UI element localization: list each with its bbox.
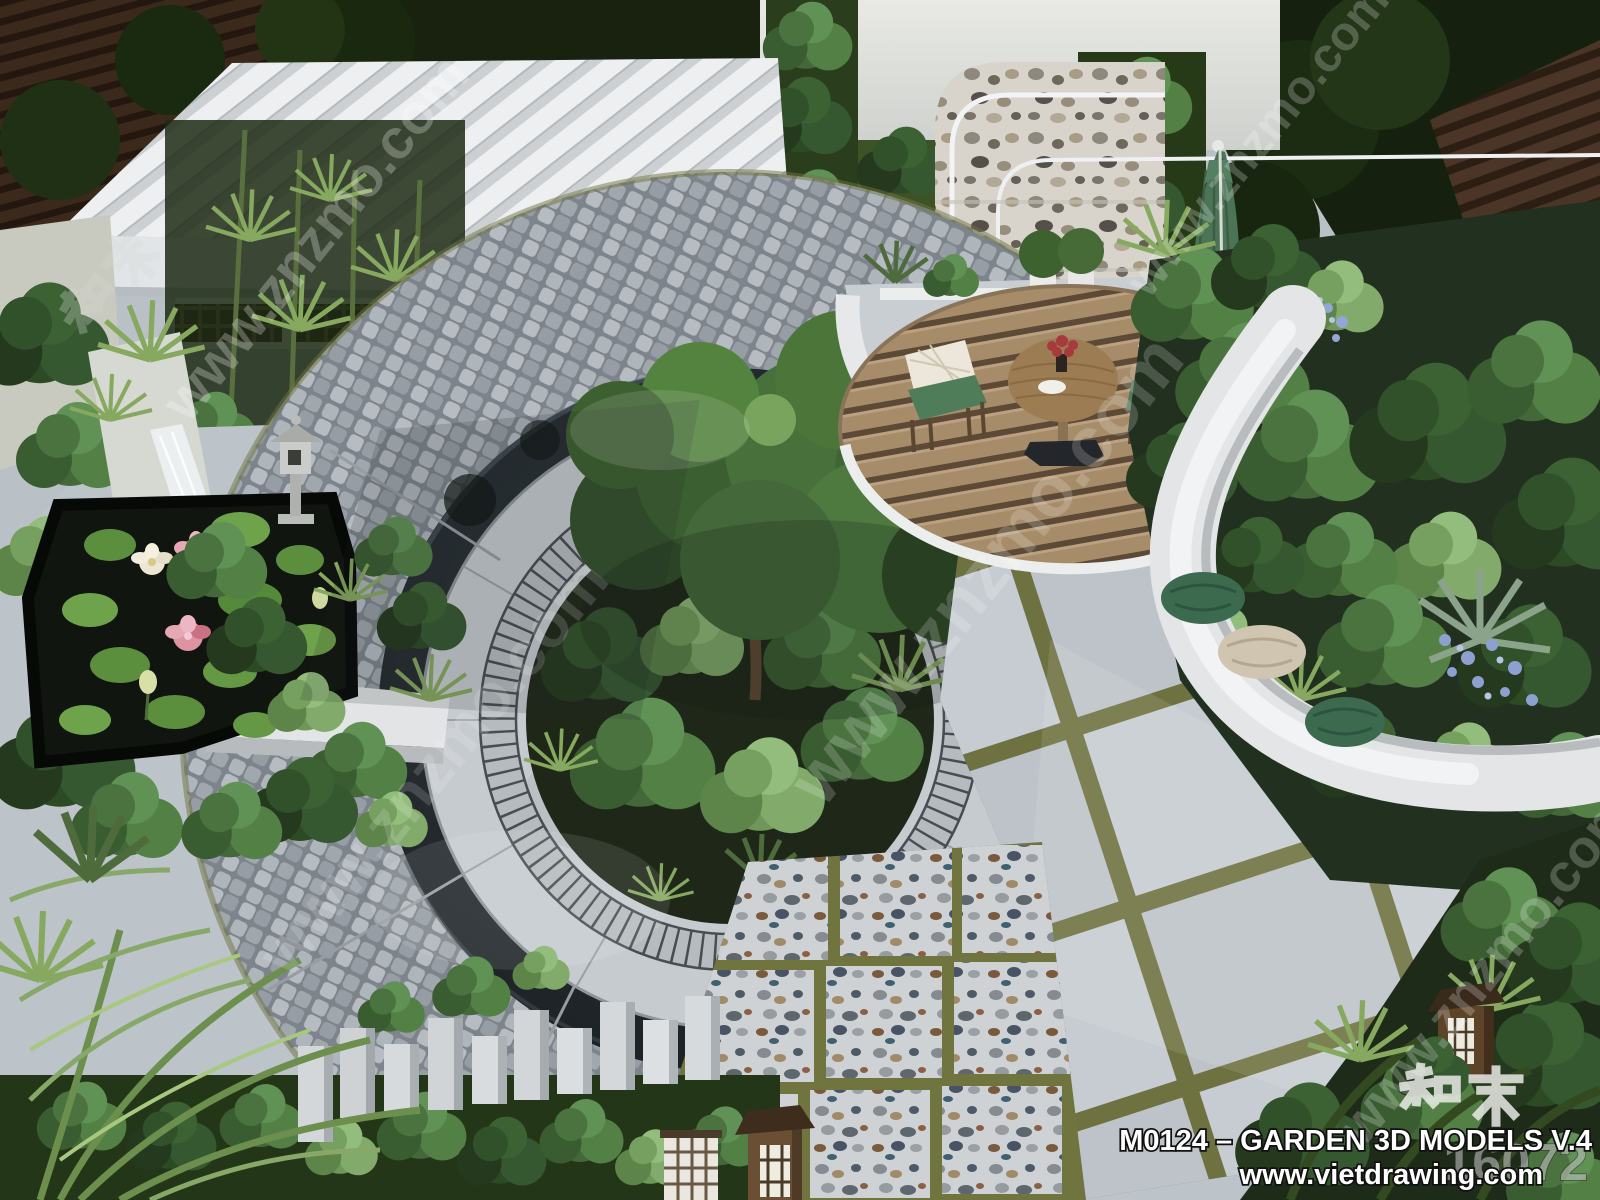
knit-pouf-green bbox=[1305, 697, 1385, 747]
garden-render-image: www.znzmo.com www.znzmo.com www.znzmo.co… bbox=[0, 0, 1600, 1200]
knit-pouf-beige bbox=[1218, 625, 1306, 679]
caption-website: www.vietdrawing.com bbox=[1239, 1159, 1543, 1191]
knit-pouf-green bbox=[1161, 572, 1245, 624]
grid-lamp bbox=[660, 1130, 722, 1200]
table-napkin bbox=[1038, 380, 1066, 394]
caption-model-title: M0124 – GARDEN 3D MODELS V.4 bbox=[1119, 1125, 1592, 1157]
garden-scene: www.znzmo.com www.znzmo.com www.znzmo.co… bbox=[0, 0, 1600, 1200]
topiary-ball bbox=[1058, 228, 1104, 274]
